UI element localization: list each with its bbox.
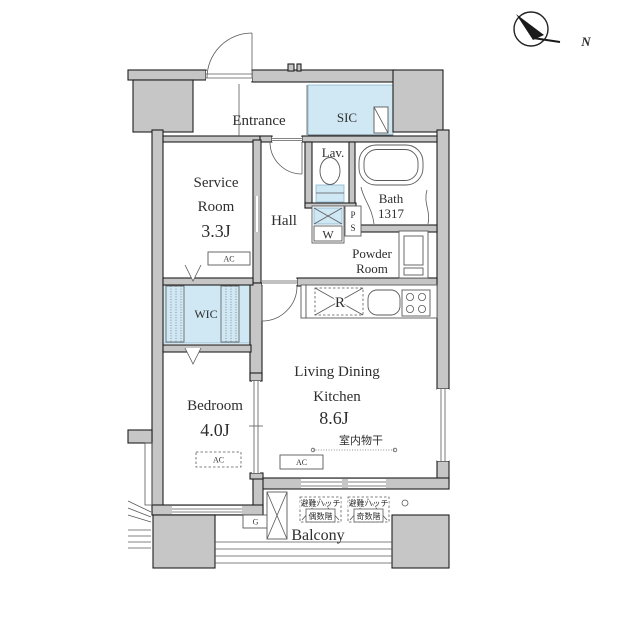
washer-icon: W — [312, 206, 344, 243]
wic-label: WIC — [194, 307, 217, 321]
kitchen-counter: R — [301, 285, 437, 318]
hatch-odd-title: 避難ハッチ — [349, 498, 389, 508]
service-room-label-2: Room — [198, 199, 235, 215]
ldk-size: 8.6J — [319, 408, 349, 428]
sic-shelf-icon — [374, 107, 388, 133]
indoor-drying-label: 室内物干 — [339, 433, 383, 447]
balcony-label: Balcony — [291, 527, 344, 544]
bath-label: Bath — [379, 191, 404, 206]
powder-room-label-2: Room — [356, 261, 388, 276]
ldk-door-icon — [262, 286, 297, 321]
refrigerator-label: R — [335, 295, 345, 311]
ldk-label-2: Kitchen — [313, 389, 361, 405]
hatch-even-floors: 偶数階 — [309, 511, 333, 521]
hall-label: Hall — [271, 213, 297, 229]
pipe-space-s: S — [350, 223, 355, 233]
washer-label: W — [322, 228, 334, 242]
indoor-drying-rail-icon — [311, 448, 397, 452]
hatch-odd-floors: 奇数階 — [357, 511, 381, 521]
stove-icon — [402, 290, 430, 316]
vanity-icon — [399, 231, 428, 278]
evacuation-hatch-odd: 避難ハッチ 奇数階 — [348, 497, 389, 522]
duct-icon — [267, 492, 287, 539]
compass-icon: N — [514, 12, 591, 49]
pipe-space-icon: P S — [345, 206, 361, 236]
gas-label: G — [253, 518, 259, 527]
evacuation-hatch-even: 避難ハッチ 偶数階 — [300, 497, 341, 522]
floor-plan-page: N — [0, 0, 640, 639]
ldk-label-1: Living Dining — [294, 364, 380, 380]
ac-label: AC — [296, 458, 307, 467]
hatch-even-title: 避難ハッチ — [301, 498, 341, 508]
hall-door-icon — [270, 142, 302, 174]
service-room-size: 3.3J — [201, 221, 231, 241]
ac-label: AC — [223, 255, 234, 264]
ac-label: AC — [213, 456, 224, 465]
bedroom-label: Bedroom — [187, 398, 243, 414]
ac-ldk: AC — [280, 455, 323, 469]
neighbor-structures — [128, 443, 152, 548]
sic-label: SIC — [337, 110, 357, 125]
sink-icon — [368, 290, 400, 315]
entrance-label: Entrance — [232, 113, 286, 129]
toilet-icon — [316, 158, 344, 203]
bedroom-size: 4.0J — [200, 420, 230, 440]
drain-icon — [402, 500, 408, 506]
powder-room-label-1: Powder — [352, 246, 392, 261]
wic-door-marker-bottom — [185, 348, 201, 364]
gas-meter-icon: G — [243, 515, 268, 528]
floor-plan: N — [0, 0, 640, 639]
compass-north-label: N — [580, 34, 591, 49]
bath-size: 1317 — [378, 206, 405, 221]
pipe-space-p: P — [350, 210, 355, 220]
ac-bedroom: AC — [196, 452, 241, 467]
service-room-label-1: Service — [194, 175, 239, 191]
lavatory-label: Lav. — [322, 145, 345, 160]
ac-service-room: AC — [208, 252, 250, 265]
